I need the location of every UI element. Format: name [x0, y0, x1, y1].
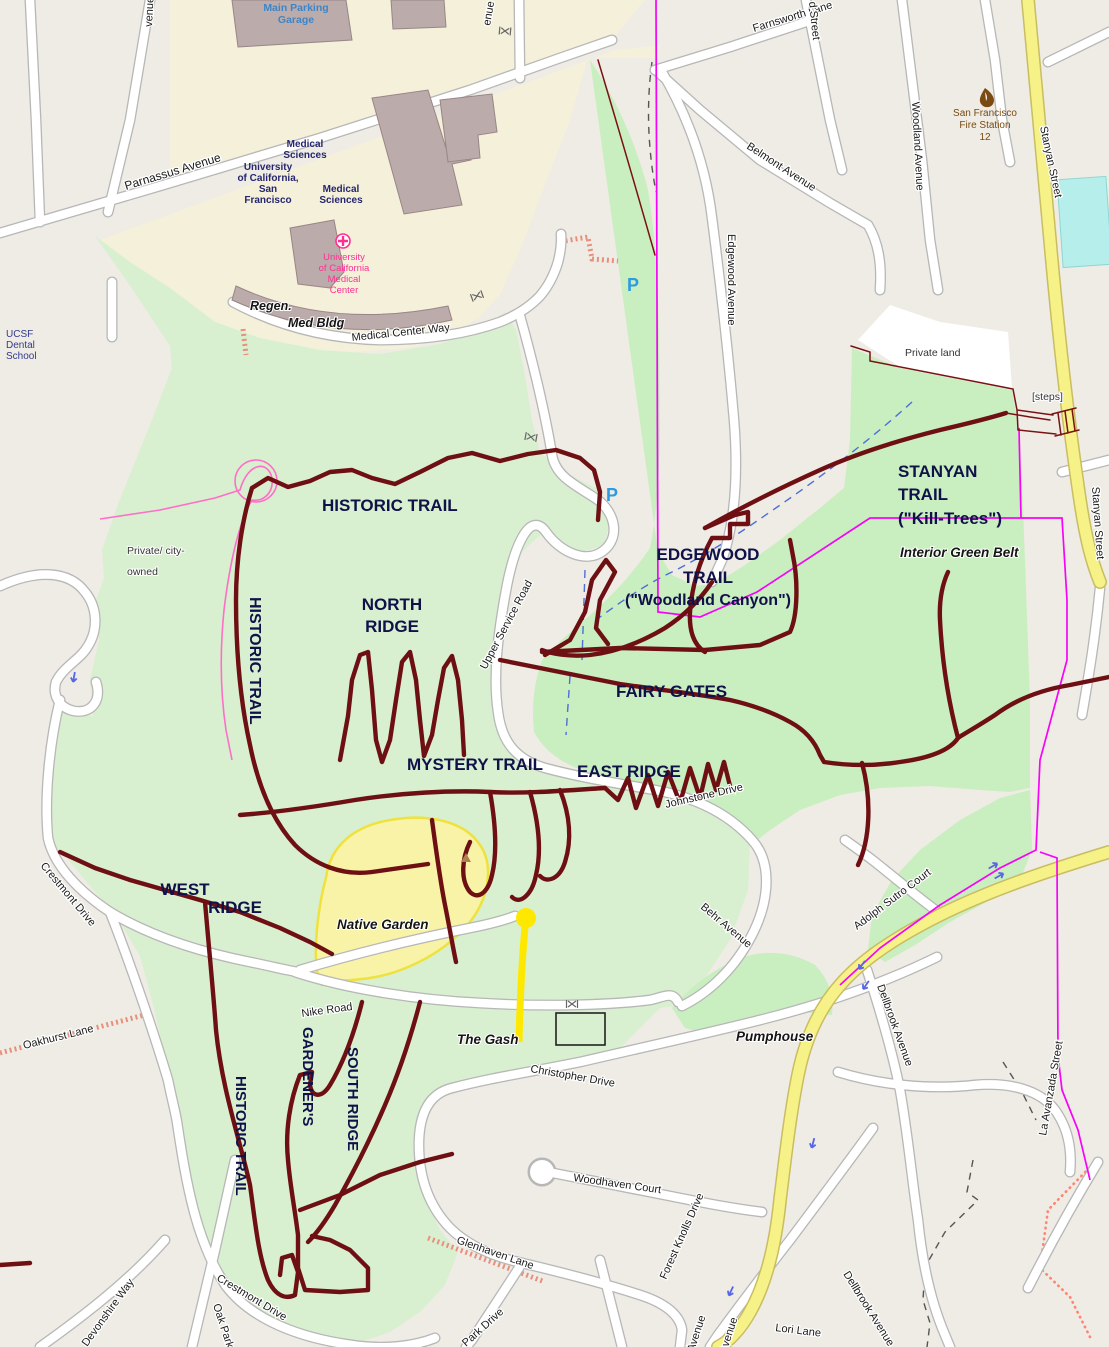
label-med-bldg: Med Bldg	[288, 316, 345, 330]
label-fire-station: Fire Station	[959, 120, 1010, 131]
road-avenue-north	[519, 0, 520, 78]
parking-icon: P	[606, 485, 618, 505]
label-gardeners-trail: GARDENER'S	[299, 1027, 316, 1126]
label-uc-medical-center: Medical	[328, 274, 361, 285]
label-historic-trail: HISTORIC TRAIL	[246, 597, 263, 725]
label-steps: [steps]	[1032, 391, 1063, 403]
label-private-land: Private land	[905, 347, 961, 359]
label-stanyan-trail: ("Kill-Trees")	[898, 509, 1002, 528]
label-edgewood-trail: EDGEWOOD	[657, 545, 760, 564]
label-west-ridge: RIDGE	[208, 898, 262, 917]
label-the-gash: The Gash	[457, 1032, 519, 1047]
label-native-garden: Native Garden	[337, 917, 429, 932]
parking-icon: P	[627, 275, 639, 295]
label-north-ridge: NORTH	[362, 595, 422, 614]
label-ucsf: Francisco	[244, 195, 291, 206]
trail-map[interactable]: Main Parking Garage Parnassus Avenue Med…	[0, 0, 1109, 1347]
label-fairy-gates: FAIRY GATES	[616, 682, 727, 701]
label-historic-trail: HISTORIC TRAIL	[232, 1076, 249, 1196]
label-pumphouse: Pumphouse	[736, 1029, 814, 1044]
label-ucsf-dental: UCSF	[6, 329, 33, 340]
label-north-ridge: RIDGE	[365, 617, 419, 636]
label-stanyan-trail: TRAIL	[898, 485, 948, 504]
label-edgewood-trail: TRAIL	[683, 568, 733, 587]
label-ucsf: San	[259, 184, 277, 195]
reservoir	[1057, 176, 1109, 267]
label-fire-station: 12	[979, 132, 991, 143]
label-ucsf: University	[244, 162, 293, 173]
label-east-ridge: EAST RIDGE	[577, 762, 681, 781]
label-edgewood-trail: ("Woodland Canyon")	[625, 592, 791, 609]
label-private-city-owned: owned	[127, 566, 158, 578]
label-uc-medical-center: of California	[319, 263, 370, 274]
label-regen: Regen.	[250, 299, 292, 313]
label-fire-station: San Francisco	[953, 108, 1017, 119]
label-historic-trail: HISTORIC TRAIL	[322, 496, 458, 515]
label-ucsf-dental: Dental	[6, 340, 35, 351]
label-avenue-fragment: venue	[143, 0, 157, 27]
label-ucsf: of California,	[237, 173, 298, 184]
label-medical-sciences: Medical	[323, 184, 360, 195]
label-medical-sciences: Sciences	[319, 195, 363, 206]
label-west-ridge: WEST	[160, 880, 210, 899]
map-canvas: Main Parking Garage Parnassus Avenue Med…	[0, 0, 1109, 1347]
label-private-city-owned: Private/ city-	[127, 545, 185, 557]
label-medical-sciences: Medical	[287, 139, 324, 150]
trail-stub-west	[0, 1263, 30, 1265]
label-mystery-trail: MYSTERY TRAIL	[407, 755, 543, 774]
label-south-ridge: SOUTH RIDGE	[344, 1047, 361, 1151]
label-edgewood-avenue: Edgewood Avenue	[725, 234, 737, 326]
label-medical-sciences: Sciences	[283, 150, 327, 161]
hospital-icon	[336, 234, 350, 248]
label-stanyan-trail: STANYAN	[898, 462, 977, 481]
label-ucsf-dental: School	[6, 351, 37, 362]
label-main-parking-garage: Main Parking	[263, 2, 328, 14]
label-main-parking-garage: Garage	[278, 14, 314, 26]
label-interior-green-belt: Interior Green Belt	[900, 545, 1019, 560]
label-uc-medical-center: Center	[330, 285, 359, 296]
label-uc-medical-center: University	[323, 252, 365, 263]
building-north	[391, 0, 446, 29]
